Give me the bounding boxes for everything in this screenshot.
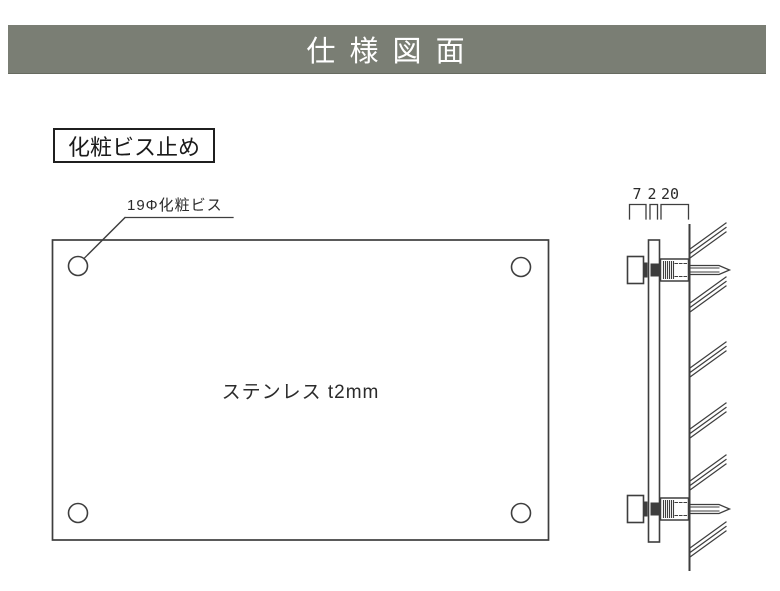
standoff-barrel: [661, 259, 689, 281]
dimension-bracket-7: [630, 205, 647, 220]
hatch-group: [690, 522, 726, 557]
washer: [644, 263, 648, 278]
leader-line-into-hole: [88, 218, 125, 255]
plate-section: [649, 240, 660, 542]
hatch-group: [690, 342, 726, 377]
screw-hole-bottom-right: [512, 504, 531, 523]
screw-hole-bottom-left: [69, 504, 88, 523]
front-view: [53, 218, 549, 541]
dimension-brackets: [630, 205, 689, 220]
screw-hole-top-right: [512, 258, 531, 277]
hatch-group: [690, 277, 726, 312]
hatch-group: [690, 455, 726, 490]
hatch-group: [690, 403, 726, 438]
wall-anchor: [690, 505, 730, 514]
screw-assembly-top: [628, 257, 730, 284]
technical-drawing: [0, 0, 780, 591]
screw-assembly-bottom: [628, 496, 730, 523]
decorative-screw-cap: [628, 496, 644, 523]
hatch-group: [690, 223, 726, 258]
wall-anchor: [690, 266, 730, 275]
washer: [644, 502, 648, 517]
standoff-barrel: [661, 498, 689, 520]
plate-outline: [53, 240, 549, 540]
side-view: [628, 205, 730, 571]
threaded-shaft-through-plate: [651, 264, 660, 277]
dimension-bracket-2: [650, 205, 658, 220]
threaded-shaft-through-plate: [651, 503, 660, 516]
decorative-screw-cap: [628, 257, 644, 284]
dimension-bracket-20: [661, 205, 689, 220]
screw-hole-top-left: [69, 257, 88, 276]
